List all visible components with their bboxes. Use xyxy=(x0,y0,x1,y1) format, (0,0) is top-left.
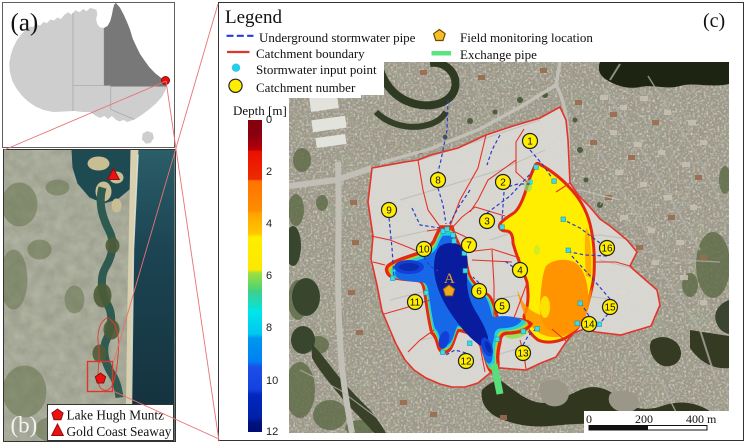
svg-text:0: 0 xyxy=(586,412,592,426)
svg-text:400 m: 400 m xyxy=(686,412,717,426)
svg-text:12: 12 xyxy=(460,357,472,368)
svg-text:1: 1 xyxy=(527,137,533,148)
svg-text:3: 3 xyxy=(484,217,490,228)
svg-text:7: 7 xyxy=(466,241,472,252)
svg-text:11: 11 xyxy=(410,298,421,309)
svg-text:A: A xyxy=(444,271,455,287)
svg-text:10: 10 xyxy=(418,245,430,256)
svg-text:2: 2 xyxy=(500,178,506,189)
svg-text:(a): (a) xyxy=(11,10,39,37)
svg-text:8: 8 xyxy=(435,176,441,187)
svg-text:(b): (b) xyxy=(11,413,38,438)
svg-text:Lake Hugh Muntz: Lake Hugh Muntz xyxy=(67,408,165,423)
svg-text:13: 13 xyxy=(517,349,529,360)
svg-text:Gold Coast Seaway: Gold Coast Seaway xyxy=(67,424,172,439)
svg-text:9: 9 xyxy=(386,206,392,217)
svg-text:200: 200 xyxy=(635,412,653,426)
svg-text:6: 6 xyxy=(476,287,482,298)
svg-text:14: 14 xyxy=(583,320,595,331)
svg-text:15: 15 xyxy=(604,303,616,314)
svg-text:16: 16 xyxy=(601,244,613,255)
svg-text:5: 5 xyxy=(499,302,505,313)
svg-text:4: 4 xyxy=(517,266,523,277)
